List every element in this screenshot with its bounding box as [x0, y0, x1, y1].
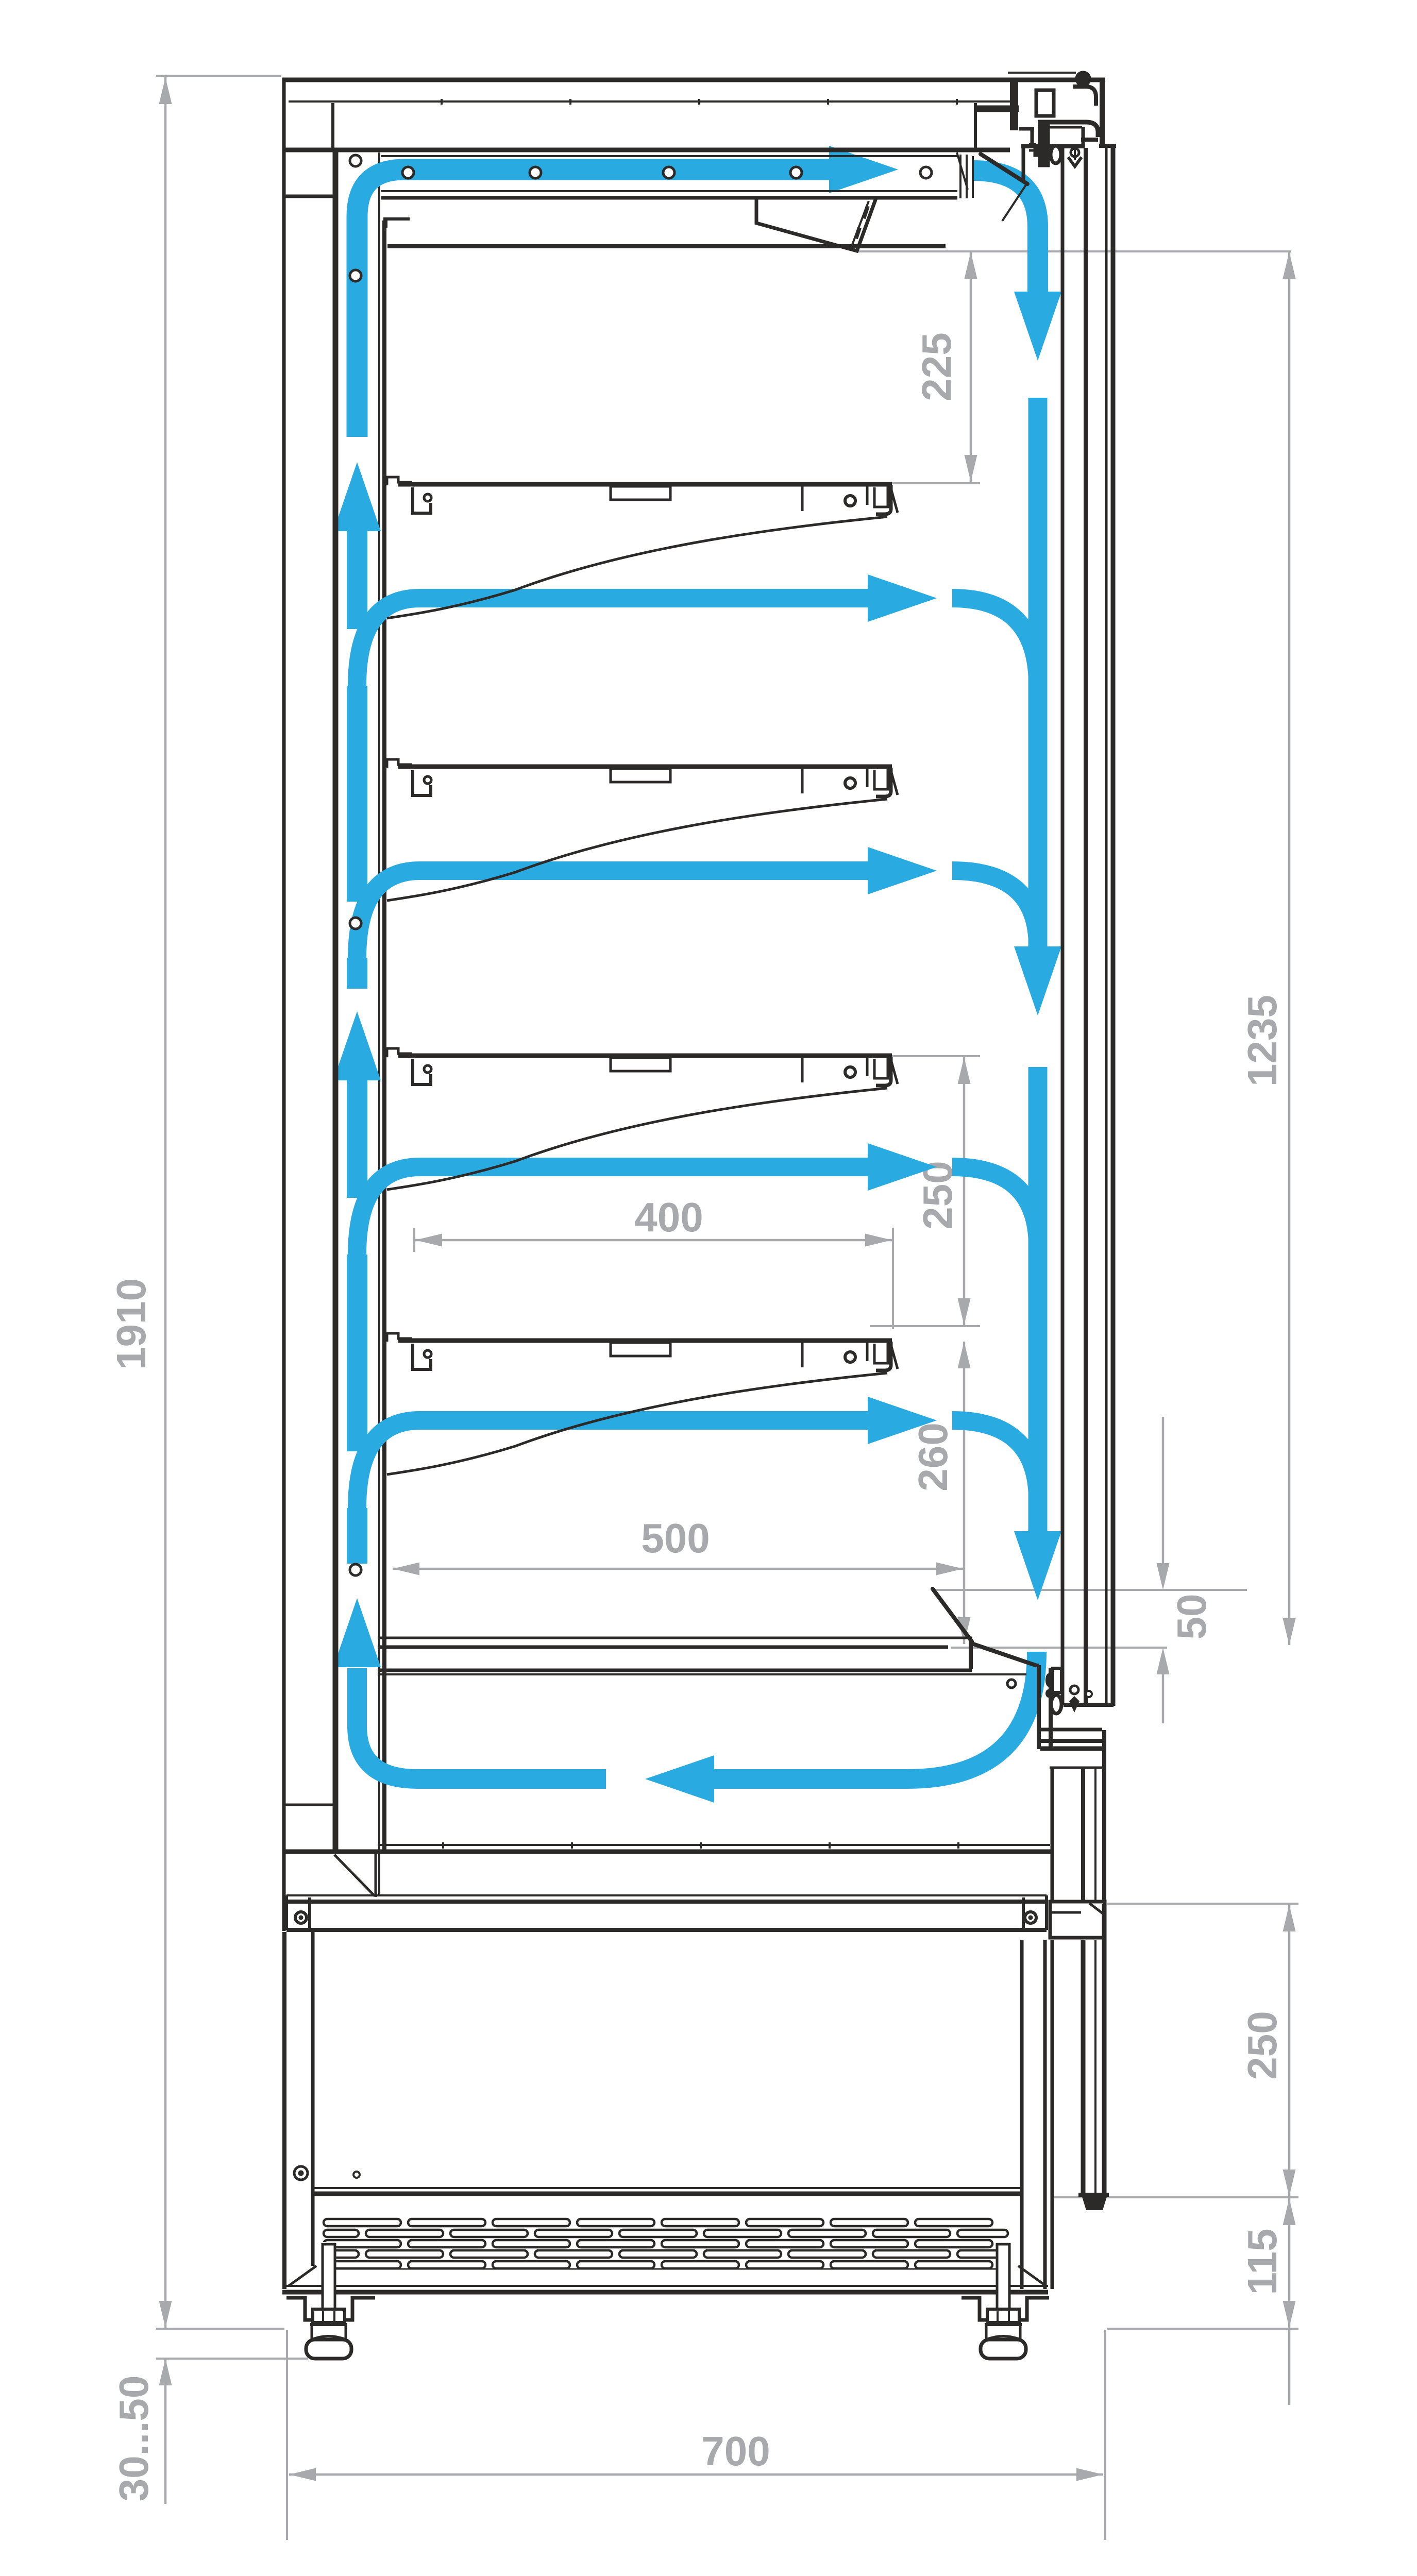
svg-text:1235: 1235	[1239, 995, 1285, 1087]
svg-text:225: 225	[914, 332, 959, 401]
svg-text:250: 250	[1239, 2011, 1285, 2079]
svg-text:1910: 1910	[108, 1278, 154, 1370]
svg-text:50: 50	[1169, 1594, 1214, 1640]
svg-text:700: 700	[701, 2428, 770, 2474]
svg-text:500: 500	[641, 1515, 710, 1561]
svg-text:400: 400	[634, 1194, 703, 1240]
svg-text:30...50: 30...50	[111, 2376, 157, 2502]
svg-text:115: 115	[1239, 2228, 1285, 2295]
svg-text:260: 260	[910, 1422, 956, 1491]
